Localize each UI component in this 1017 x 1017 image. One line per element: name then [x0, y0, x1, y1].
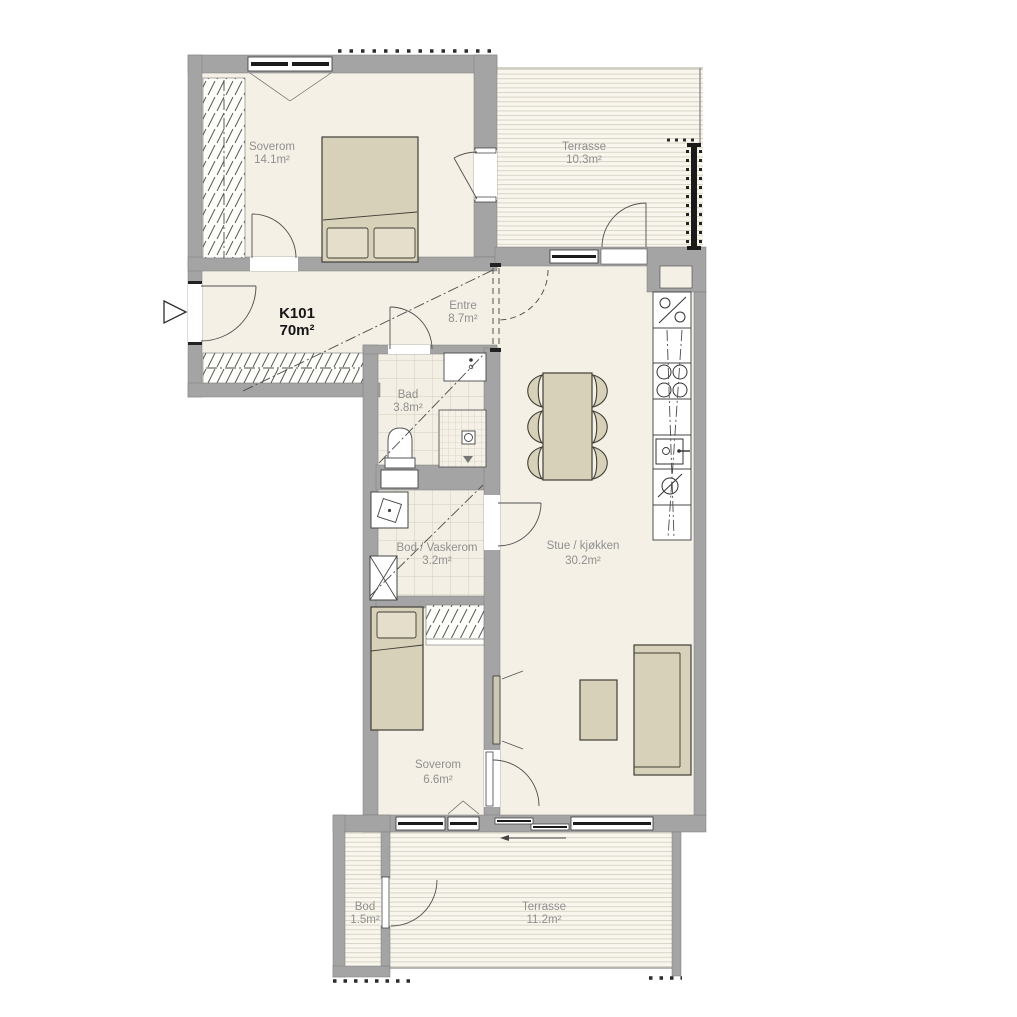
toilet	[385, 428, 415, 468]
room-label-bedroom2-area: 6.6m²	[423, 774, 453, 786]
room-label-terrace-bottom-area: 11.2m²	[527, 914, 562, 926]
wardrobe-bedroom2	[426, 605, 484, 645]
bathroom-sink	[444, 353, 486, 381]
wardrobe-hall	[203, 353, 363, 383]
sofa	[634, 645, 691, 775]
washing-machine	[371, 492, 408, 528]
bod-decking	[345, 832, 381, 966]
room-label-hall-area: 8.7m²	[448, 313, 478, 325]
room-label-bath-area: 3.8m²	[393, 402, 423, 414]
water-heater	[370, 556, 397, 600]
room-label-laundry-area: 3.2m²	[422, 555, 452, 567]
shower	[439, 410, 486, 467]
wardrobe-bedroom1	[203, 78, 245, 258]
unit-id: K101	[279, 305, 315, 322]
room-label-laundry-name: Bod / Vaskerom	[397, 542, 478, 554]
terrace-top-window	[550, 250, 598, 263]
room-label-bod-area: 1.5m²	[350, 914, 380, 926]
room-label-bedroom2-name: Soverom	[415, 759, 461, 771]
unit-area: 70m²	[279, 322, 314, 339]
double-bed	[322, 137, 418, 262]
single-bed	[371, 607, 423, 730]
kitchen	[653, 292, 691, 540]
room-label-living-name: Stue / kjøkken	[547, 540, 620, 552]
room-label-terrace-bottom-name: Terrasse	[522, 901, 566, 913]
room-label-hall-name: Entre	[449, 300, 477, 312]
floor-plan-drawing: Soverom 14.1m² Terrasse 10.3m² K101 70m²…	[0, 0, 1017, 1017]
living-window	[571, 817, 653, 830]
kitchen-counter	[653, 292, 691, 540]
wall-niche	[660, 266, 692, 288]
shower-drain	[462, 431, 475, 444]
entry-arrow-icon	[164, 301, 186, 323]
room-label-terrace-top-name: Terrasse	[562, 141, 606, 153]
dining-table	[543, 373, 592, 480]
room-label-bedroom1-area: 14.1m²	[254, 154, 290, 166]
room-label-living-area: 30.2m²	[565, 555, 601, 567]
bathroom-cabinet	[381, 470, 418, 488]
room-label-bath-name: Bad	[398, 389, 418, 401]
coffee-table	[580, 680, 617, 740]
room-label-bedroom1-name: Soverom	[249, 141, 295, 153]
bedroom2-window-1	[396, 817, 445, 830]
room-label-terrace-top-area: 10.3m²	[566, 154, 602, 166]
room-label-bod-name: Bod	[355, 901, 375, 913]
floors	[202, 68, 703, 968]
terrace-top-door-threshold	[601, 249, 647, 264]
floor-plan-page: Soverom 14.1m² Terrasse 10.3m² K101 70m²…	[0, 0, 1017, 1017]
